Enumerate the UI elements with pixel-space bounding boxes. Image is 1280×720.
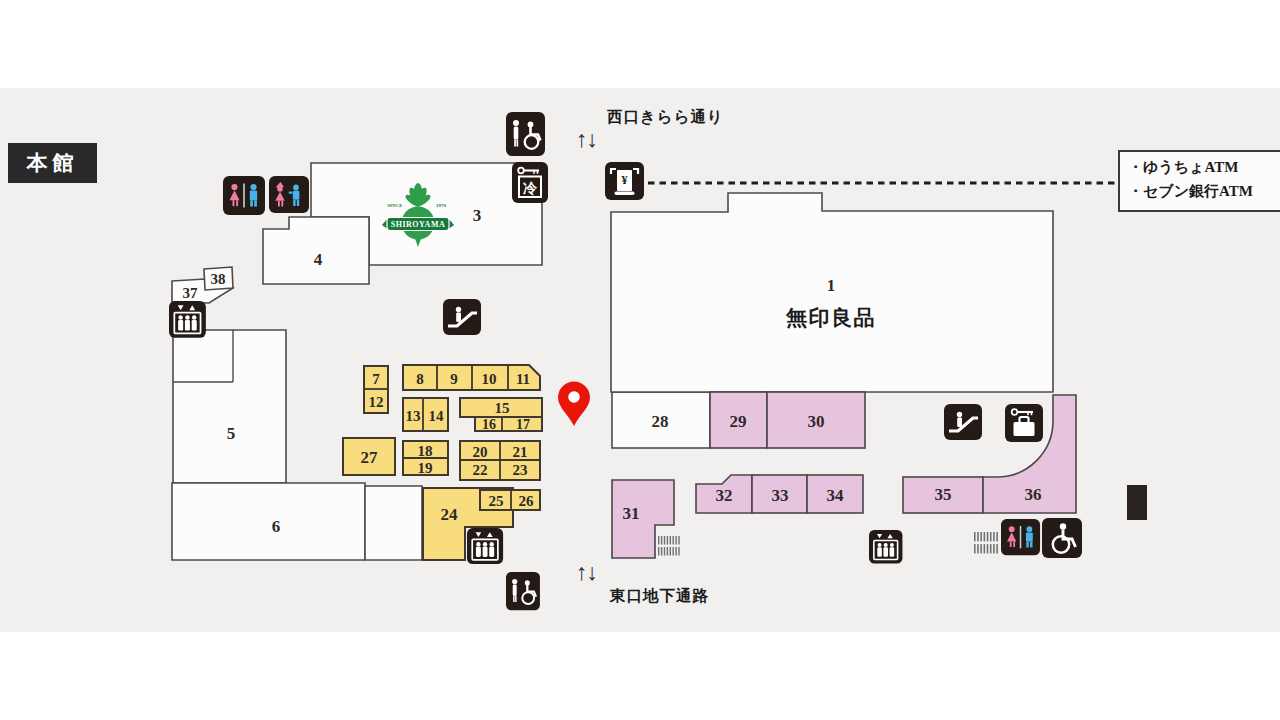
unit-35-label: 35 (935, 485, 952, 504)
street-label-west: 西口きらら通り (607, 107, 724, 128)
accessible-toilet-icon (506, 112, 545, 156)
unit-16-label: 16 (482, 417, 496, 432)
unit-34-label: 34 (827, 486, 845, 505)
unit-27-label: 27 (361, 448, 379, 467)
unit-6-shape (172, 483, 365, 560)
escalator-icon (944, 404, 982, 440)
unit-5-label: 5 (227, 424, 236, 443)
map-pin-icon (558, 382, 590, 427)
wall-block (1127, 485, 1147, 520)
two-way-arrows-icon: ↑↓ (576, 559, 597, 586)
unit-19-label: 19 (418, 460, 433, 476)
unit-6-label: 6 (272, 517, 281, 536)
unit-8-label: 8 (416, 371, 424, 387)
logo-since-text: SINCE (387, 203, 403, 208)
unit-33-label: 33 (772, 486, 789, 505)
coin-locker-cold-icon (512, 162, 548, 203)
escalator-icon (443, 299, 481, 335)
coin-locker-icon (1005, 404, 1043, 442)
atm-legend-line2: ・セブン銀行ATM (1128, 179, 1278, 203)
accessible-toilet-icon (506, 572, 540, 610)
unit-26-label: 26 (519, 493, 535, 509)
unit-12-label: 12 (369, 394, 384, 410)
building-title: 本館 (8, 143, 97, 183)
logo-name-text: SHIROYAMA (391, 220, 445, 229)
unit-31-label: 31 (623, 504, 640, 523)
unit-10-label: 10 (482, 371, 497, 387)
unit-30-label: 30 (808, 412, 825, 431)
unit-3-label: 3 (473, 206, 482, 225)
unit-20-label: 20 (473, 444, 488, 460)
unit-17-label: 17 (516, 417, 530, 432)
logo-year-text: 1970 (436, 203, 447, 208)
unit-32-label: 32 (716, 486, 733, 505)
unit-15-label: 15 (495, 400, 510, 416)
unit-38-label: 38 (211, 271, 226, 287)
atm-legend-line1: ・ゆうちょATM (1128, 155, 1278, 179)
unit-4-label: 4 (314, 250, 323, 269)
unit-22-label: 22 (473, 462, 488, 478)
unit-18-label: 18 (418, 443, 433, 459)
unit-1-tenant: 無印良品 (785, 306, 876, 329)
elevator-icon (467, 528, 503, 564)
unit-28-label: 28 (652, 412, 669, 431)
unit-31-shape (612, 480, 674, 558)
unit-11-label: 11 (516, 371, 530, 387)
unit-25-label: 25 (489, 493, 504, 509)
unit-24-label: 24 (441, 505, 459, 524)
unit-7-label: 7 (372, 371, 380, 387)
unit-13-label: 13 (406, 408, 421, 424)
unit-cell-shape (365, 486, 422, 560)
unit-5-shape (173, 330, 286, 483)
unit-21-label: 21 (513, 444, 528, 460)
unit-9-label: 9 (450, 371, 458, 387)
unit-36-label: 36 (1025, 485, 1042, 504)
elevator-icon (869, 530, 902, 563)
toilet-icon (223, 176, 265, 215)
two-way-arrows-icon: ↑↓ (576, 126, 597, 153)
stairs-icon (658, 536, 680, 556)
wheelchair-icon (1042, 518, 1082, 558)
atm-icon (605, 162, 644, 200)
unit-23-label: 23 (513, 462, 528, 478)
elevator-icon (169, 301, 206, 338)
unit-14-label: 14 (429, 408, 445, 424)
unit-1-label: 1 (827, 276, 836, 295)
toilet-icon (1001, 519, 1040, 555)
street-label-east: 東口地下通路 (610, 586, 709, 607)
atm-legend-box: ・ゆうちょATM ・セブン銀行ATM (1118, 150, 1280, 212)
unit-37-label: 37 (183, 285, 199, 301)
kids-toilet-icon (269, 176, 309, 213)
stairs-icon (974, 532, 998, 553)
unit-29-label: 29 (730, 412, 747, 431)
